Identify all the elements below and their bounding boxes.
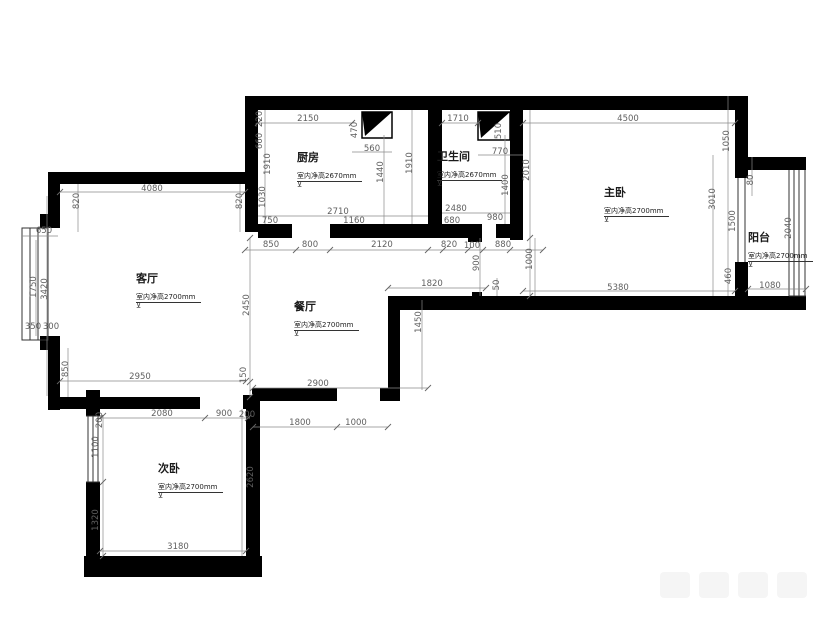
dimension-label: 1820: [421, 280, 443, 289]
dimension-label: 750: [262, 217, 278, 226]
room-name: 主卧: [604, 187, 669, 198]
dimension-label: 4080: [141, 185, 163, 194]
dimension-label: 680: [444, 217, 460, 226]
dimension-label: 660: [256, 133, 265, 149]
dimension-label: 80: [747, 175, 756, 186]
dimension-label: 2620: [247, 466, 256, 488]
watermark-block: [660, 572, 690, 598]
dimension-label: 1710: [447, 115, 469, 124]
room-height-note: 室内净高2700mm: [748, 253, 813, 262]
annotation-layer: 厨房室内净高2670mm⊻卫生间室内净高2670mm⊻主卧室内净高2700mm⊻…: [0, 0, 840, 630]
dimension-label: 820: [441, 241, 457, 250]
dimension-label: 850: [263, 241, 279, 250]
dimension-label: 1320: [92, 509, 101, 531]
level-mark-icon: ⊻: [294, 331, 359, 338]
dimension-label: 300: [43, 323, 59, 332]
dimension-label: 2450: [243, 294, 252, 316]
room-name: 餐厅: [294, 301, 359, 312]
room-label-dining-room: 餐厅室内净高2700mm⊻: [294, 301, 359, 338]
dimension-label: 4500: [617, 115, 639, 124]
room-height-note: 室内净高2670mm: [437, 172, 502, 181]
dimension-label: 1910: [406, 152, 415, 174]
dimension-label: 2120: [371, 241, 393, 250]
watermark-block: [777, 572, 807, 598]
dimension-label: 2080: [151, 410, 173, 419]
dimension-label: 1800: [289, 419, 311, 428]
dimension-label: 460: [725, 268, 734, 284]
dimension-label: 5380: [607, 284, 629, 293]
watermark-block: [738, 572, 768, 598]
dimension-label: 1400: [502, 174, 511, 196]
dimension-label: 200: [239, 411, 255, 420]
level-mark-icon: ⊻: [604, 217, 669, 224]
watermark: [660, 572, 807, 598]
dimension-label: 200: [96, 412, 105, 428]
dimension-label: 820: [73, 193, 82, 209]
level-mark-icon: ⊻: [297, 182, 362, 189]
room-height-note: 室内净高2700mm: [294, 322, 359, 331]
dimension-label: 100: [464, 242, 480, 251]
dimension-label: 900: [216, 410, 232, 419]
dimension-label: 1100: [92, 436, 101, 458]
dimension-label: 1080: [759, 282, 781, 291]
room-height-note: 室内净高2700mm: [158, 484, 223, 493]
room-label-kitchen: 厨房室内净高2670mm⊻: [297, 152, 362, 189]
dimension-label: 2040: [785, 217, 794, 239]
dimension-label: 470: [351, 122, 360, 138]
room-name: 客厅: [136, 273, 201, 284]
dimension-label: 350: [25, 323, 41, 332]
room-height-note: 室内净高2700mm: [604, 208, 669, 217]
dimension-label: 560: [364, 145, 380, 154]
dimension-label: 650: [36, 227, 52, 236]
room-name: 次卧: [158, 463, 223, 474]
room-height-note: 室内净高2700mm: [136, 294, 201, 303]
dimension-label: 220: [256, 111, 265, 127]
dimension-label: 800: [302, 241, 318, 250]
dimension-label: 1050: [723, 130, 732, 152]
dimension-label: 770: [492, 148, 508, 157]
dimension-label: 3180: [167, 543, 189, 552]
dimension-label: 1500: [729, 210, 738, 232]
room-name: 厨房: [297, 152, 362, 163]
dimension-label: 1030: [259, 186, 268, 208]
dimension-label: 150: [240, 367, 249, 383]
dimension-label: 1450: [415, 311, 424, 333]
room-label-master-bedroom: 主卧室内净高2700mm⊻: [604, 187, 669, 224]
dimension-label: 900: [473, 255, 482, 271]
dimension-label: 820: [236, 193, 245, 209]
dimension-label: 1910: [264, 153, 273, 175]
watermark-block: [699, 572, 729, 598]
dimension-label: 850: [62, 361, 71, 377]
dimension-label: 2900: [307, 380, 329, 389]
dimension-label: 3010: [709, 188, 718, 210]
level-mark-icon: ⊻: [158, 493, 223, 500]
level-mark-icon: ⊻: [136, 303, 201, 310]
dimension-label: 1000: [526, 248, 535, 270]
dimension-label: 3420: [41, 278, 50, 300]
dimension-label: 980: [487, 214, 503, 223]
dimension-label: 1750: [30, 276, 39, 298]
room-name: 阳台: [748, 232, 813, 243]
room-height-note: 室内净高2670mm: [297, 173, 362, 182]
dimension-label: 50: [493, 280, 502, 291]
dimension-label: 880: [495, 241, 511, 250]
level-mark-icon: ⊻: [437, 181, 502, 188]
dimension-label: 2950: [129, 373, 151, 382]
dimension-label: 1440: [377, 161, 386, 183]
dimension-label: 2150: [297, 115, 319, 124]
level-mark-icon: ⊻: [748, 262, 813, 269]
floor-plan-canvas: 厨房室内净高2670mm⊻卫生间室内净高2670mm⊻主卧室内净高2700mm⊻…: [0, 0, 840, 630]
dimension-label: 2480: [445, 205, 467, 214]
room-label-living-room: 客厅室内净高2700mm⊻: [136, 273, 201, 310]
dimension-label: 2010: [523, 159, 532, 181]
room-label-second-bedroom: 次卧室内净高2700mm⊻: [158, 463, 223, 500]
dimension-label: 1000: [345, 419, 367, 428]
dimension-label: 510: [495, 123, 504, 139]
dimension-label: 1160: [343, 217, 365, 226]
room-label-balcony: 阳台室内净高2700mm⊻: [748, 232, 813, 269]
